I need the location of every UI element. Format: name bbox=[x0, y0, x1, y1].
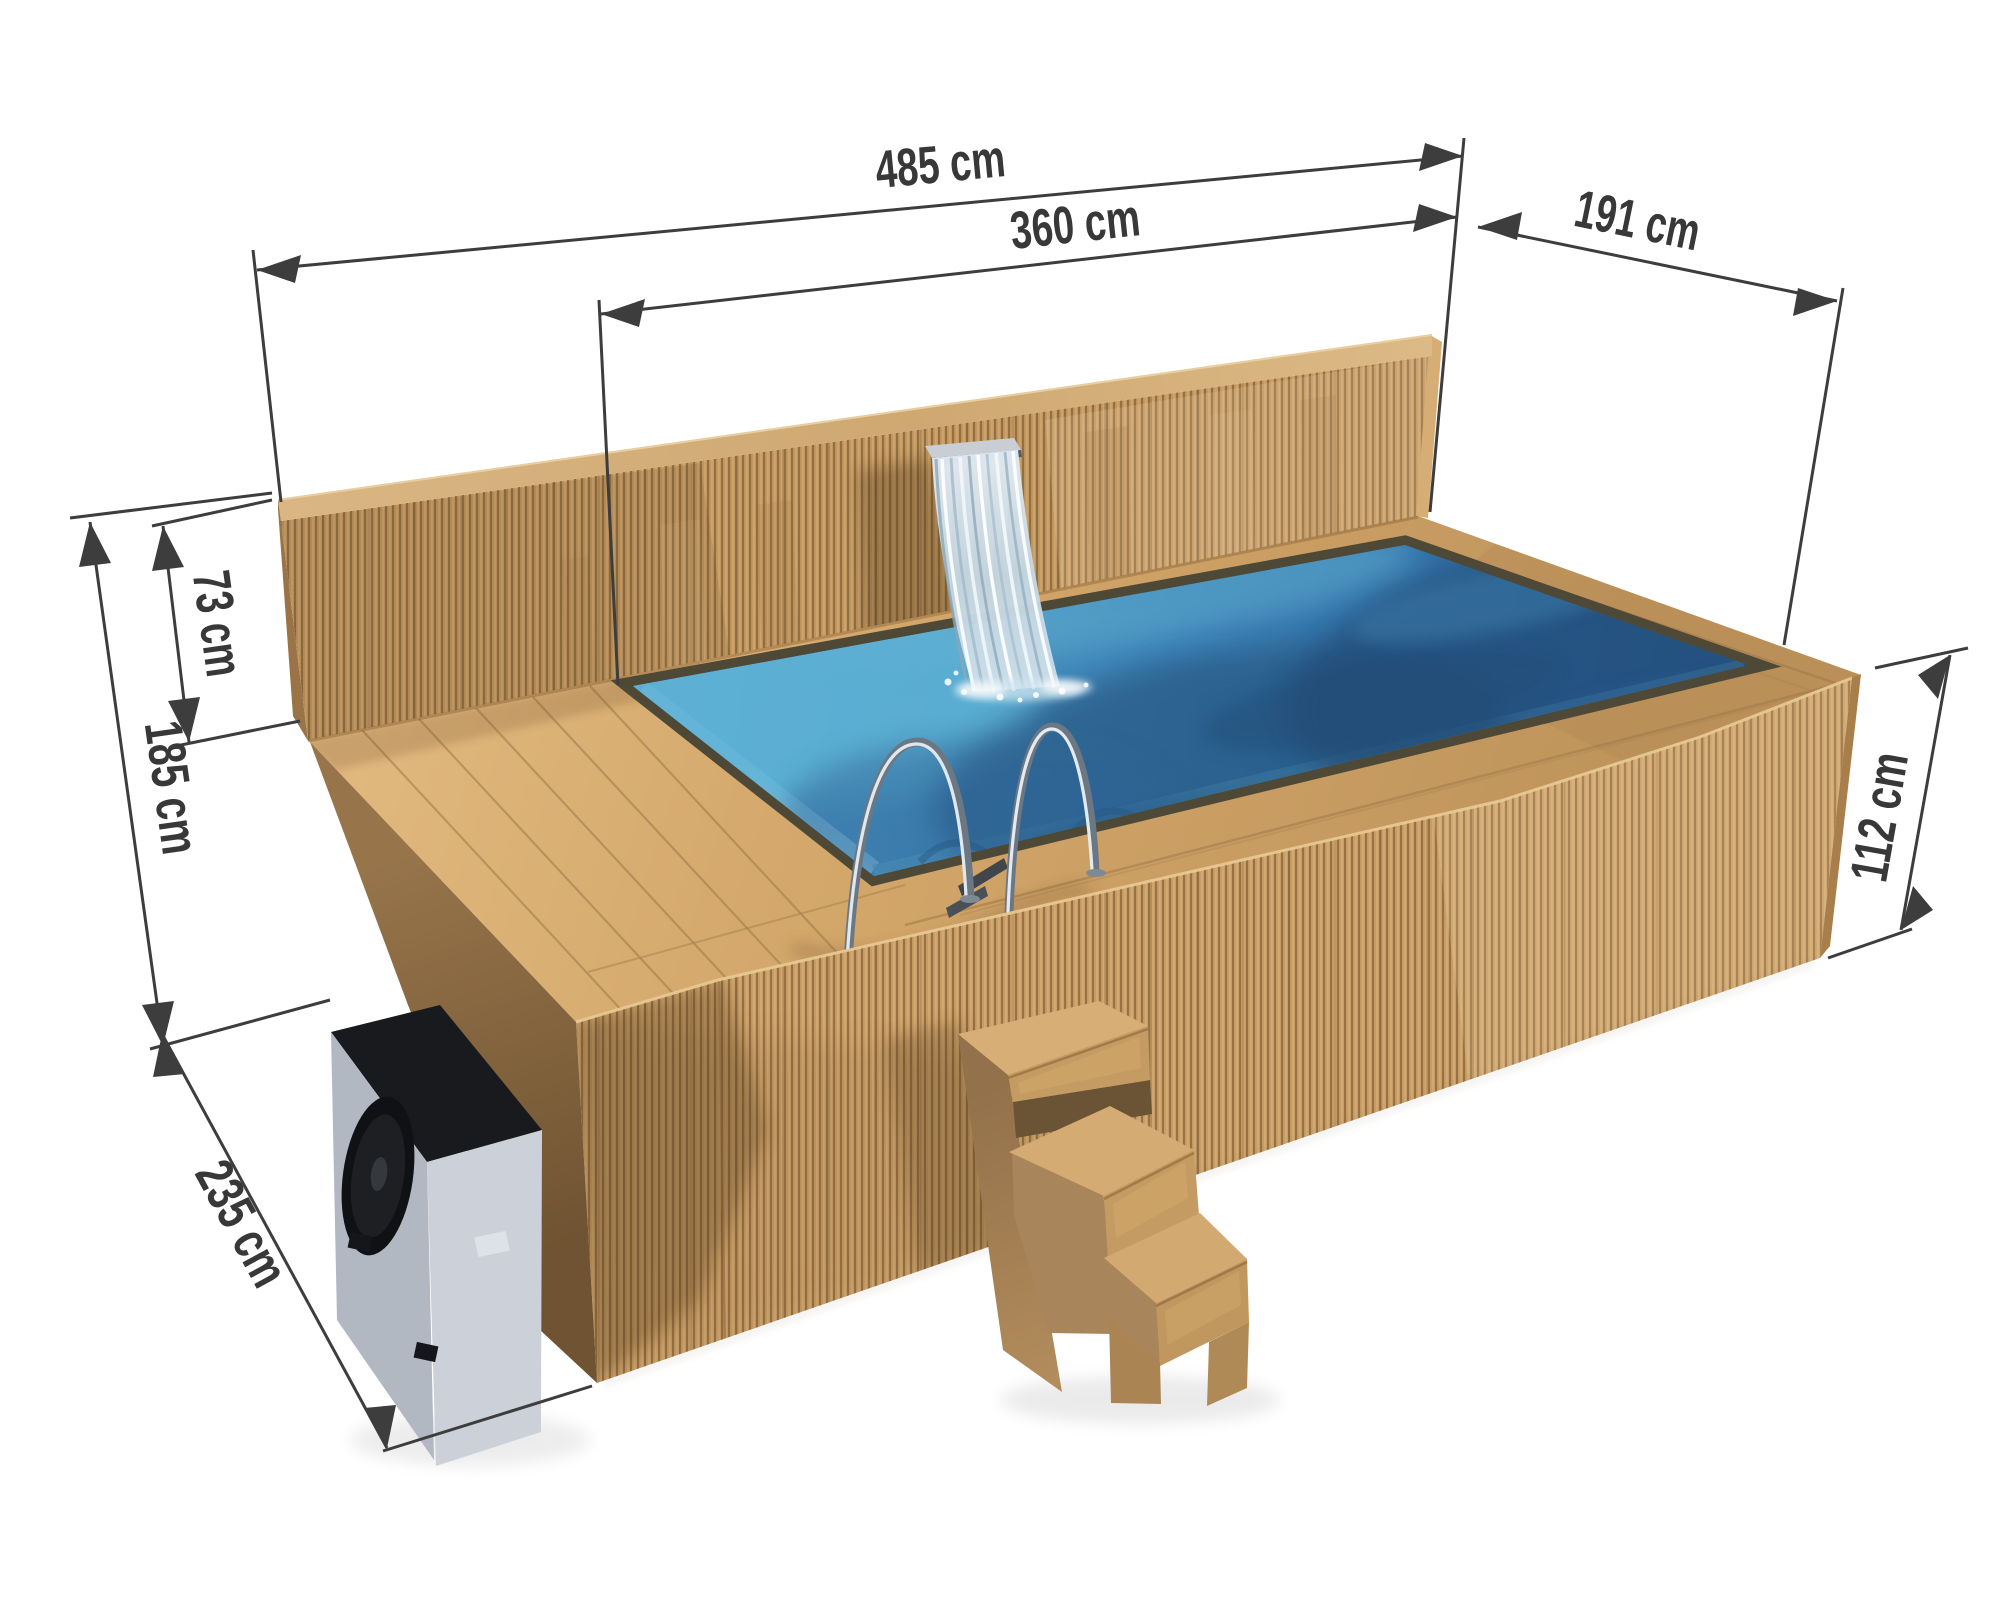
svg-text:485 cm: 485 cm bbox=[873, 129, 1008, 200]
